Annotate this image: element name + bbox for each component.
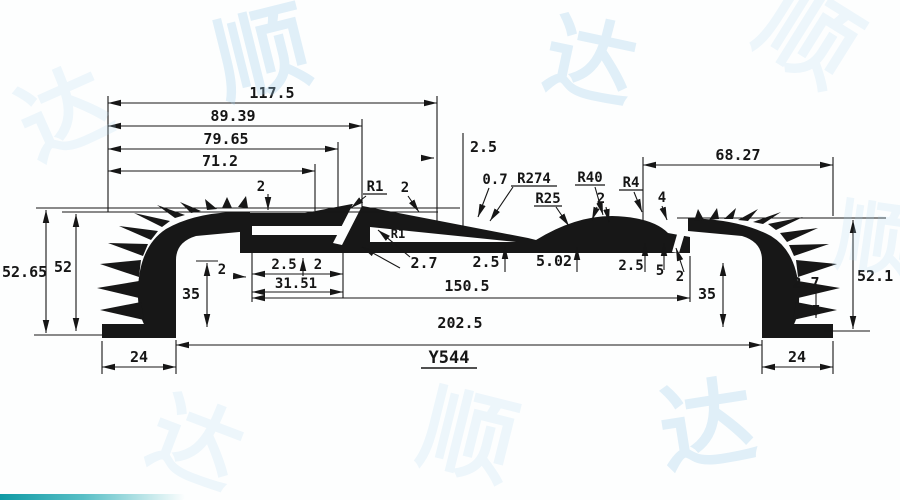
leader-0-7 bbox=[478, 188, 489, 217]
scan-edge-artifact bbox=[0, 494, 185, 500]
part-number: Y544 bbox=[429, 348, 470, 368]
radius-r25-label: R25 bbox=[535, 191, 560, 207]
dim-fin-height-35-left: 35 bbox=[182, 285, 200, 303]
dim-2-7-mid: 2.7 bbox=[410, 254, 437, 272]
profile-left-foot bbox=[102, 324, 176, 338]
dim-foot-24-left: 24 bbox=[130, 348, 148, 366]
dim-slot-length-31-51: 31.51 bbox=[275, 276, 317, 292]
dim-height-52-65: 52.65 bbox=[2, 263, 47, 281]
dim-width-68-27: 68.27 bbox=[715, 146, 760, 164]
leader-r4 bbox=[634, 192, 642, 212]
dim-width-89-39: 89.39 bbox=[210, 107, 255, 125]
radius-r274-label: R274 bbox=[517, 171, 551, 187]
radius-r40-label: R40 bbox=[577, 170, 602, 186]
dim-2-5-right: 2.5 bbox=[618, 258, 643, 274]
dim-width-117-5: 117.5 bbox=[249, 84, 294, 102]
dim-slot-2: 2 bbox=[314, 257, 322, 273]
dim-height-52-1: 52.1 bbox=[857, 267, 893, 285]
dim-slot-2-5: 2.5 bbox=[271, 257, 296, 273]
dim-2-5-mid: 2.5 bbox=[472, 253, 499, 271]
dim-span-202-5: 202.5 bbox=[437, 314, 482, 332]
drawing-canvas: 顺 达 顺 达 顺 达 达 顺 bbox=[0, 0, 900, 500]
dim-width-79-65: 79.65 bbox=[203, 130, 248, 148]
dim-wall-2-left: 2 bbox=[218, 262, 226, 278]
dim-span-150-5: 150.5 bbox=[444, 277, 489, 295]
dim-height-52: 52 bbox=[54, 258, 72, 276]
leader-wall-2 bbox=[233, 276, 246, 277]
leader-slope-2 bbox=[408, 196, 419, 212]
technical-drawing: 117.5 89.39 79.65 71.2 2.5 68.27 2 R1 2 … bbox=[0, 0, 900, 500]
dim-0-7: 0.7 bbox=[482, 172, 507, 188]
leader-r25 bbox=[556, 207, 569, 226]
dim-slope-thickness-2: 2 bbox=[401, 180, 409, 196]
dim-hump-height-4: 4 bbox=[658, 190, 666, 206]
radius-r1-label: R1 bbox=[367, 179, 384, 195]
dim-5-02: 5.02 bbox=[536, 252, 572, 270]
dim-step-2-5: 2.5 bbox=[470, 138, 497, 156]
radius-r1-gap-label: R1 bbox=[391, 227, 405, 241]
dim-hump-thickness-2: 2 bbox=[597, 191, 605, 207]
slot-cutout bbox=[252, 226, 343, 235]
dim-foot-24-right: 24 bbox=[788, 348, 806, 366]
dim-width-71-2: 71.2 bbox=[202, 152, 238, 170]
dim-2-right: 2 bbox=[676, 269, 684, 285]
dim-2-7-right: 2.7 bbox=[792, 274, 819, 292]
dim-top-thickness-2: 2 bbox=[257, 179, 265, 195]
dim-5-right: 5 bbox=[656, 263, 664, 279]
leader-r274 bbox=[490, 187, 513, 221]
leader-4 bbox=[662, 206, 667, 220]
radius-r4-label: R4 bbox=[623, 175, 640, 191]
profile-left-wall bbox=[138, 212, 250, 326]
profile-right-foot bbox=[762, 324, 833, 338]
dim-fin-height-35-right: 35 bbox=[698, 285, 716, 303]
